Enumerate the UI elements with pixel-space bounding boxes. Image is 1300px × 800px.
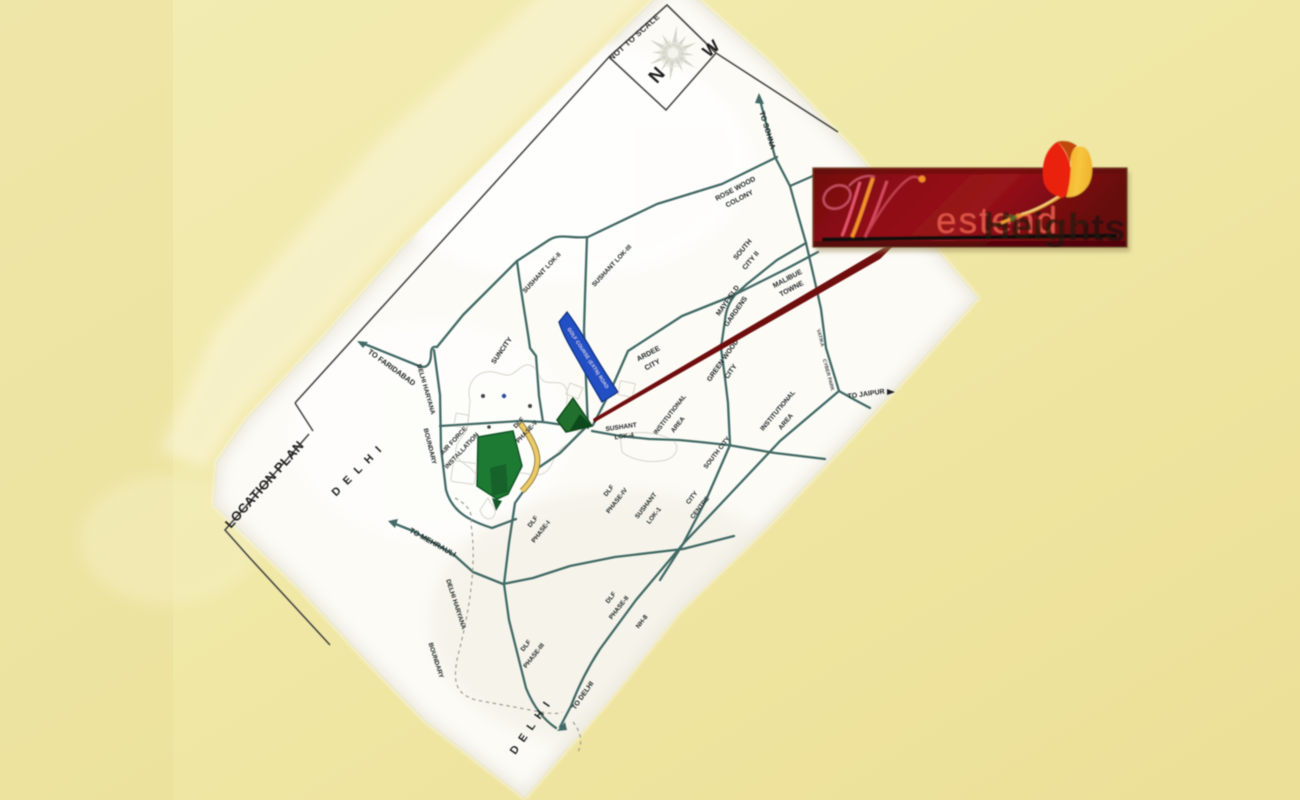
svg-text:Heights: Heights <box>983 205 1127 250</box>
